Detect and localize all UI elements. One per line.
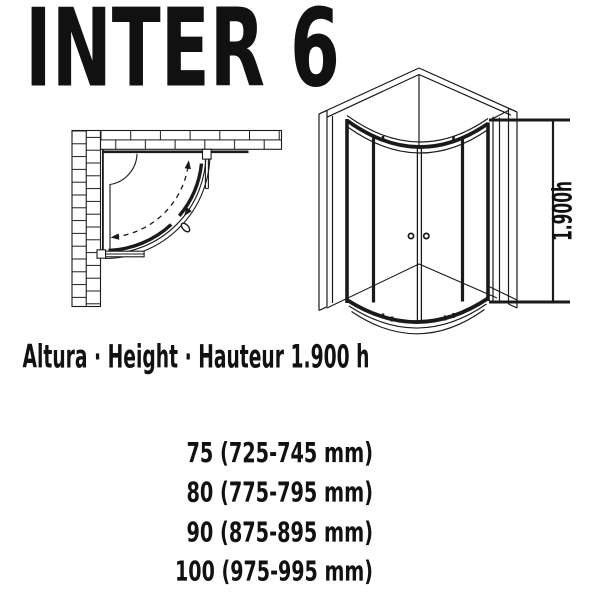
door-track-bottom-left (97, 250, 144, 258)
height-caption: Altura · Height · Hauteur 1.900 h (23, 338, 370, 376)
top-rail-upper-edge (347, 116, 488, 143)
top-rail (347, 121, 488, 148)
perspective-view-diagram (319, 68, 517, 334)
side-glass-edges (333, 111, 509, 304)
size-option-80: 80 (775-795 mm) (187, 476, 374, 509)
size-option-100: 100 (975-995 mm) (175, 555, 373, 588)
door-stiles-center (417, 147, 421, 323)
plan-view-diagram (72, 131, 282, 307)
rim-inner-arc (106, 154, 207, 255)
rim-outer-arc (105, 154, 210, 259)
technical-drawing: INTER 6 (0, 0, 600, 600)
door-guide-ticks (383, 136, 454, 322)
door-track-top-right (203, 149, 212, 188)
door-knob-left (408, 233, 413, 238)
size-option-75: 75 (725-745 mm) (187, 436, 374, 469)
height-dimension: 1.900h (489, 120, 579, 302)
height-dimension-label: 1.900h (548, 181, 579, 241)
size-option-90: 90 (875-895 mm) (187, 516, 374, 549)
catalog-page: INTER 6 (0, 0, 600, 600)
door-knob-right (424, 233, 429, 238)
size-list: 75 (725-745 mm) 80 (775-795 mm) 90 (875-… (175, 436, 373, 588)
door-handle (180, 222, 191, 234)
wall-panel-left (319, 110, 327, 310)
brick-wall-top (101, 131, 282, 150)
page-title: INTER 6 (25, 0, 340, 112)
wall-panel-right (509, 108, 518, 308)
